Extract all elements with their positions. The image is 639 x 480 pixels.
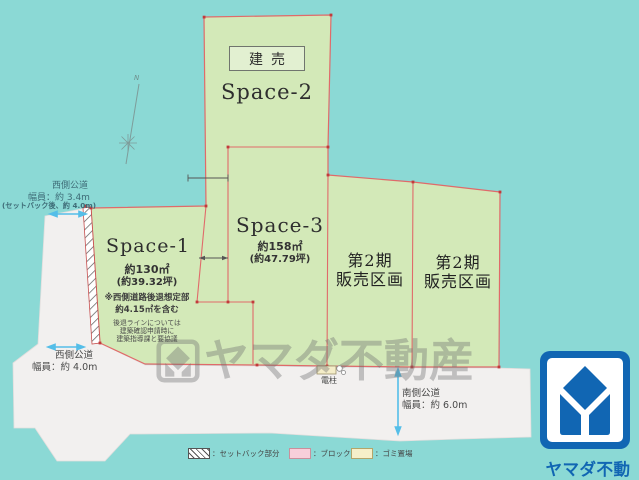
utility-pole-icon: [317, 366, 346, 375]
west-road-upper-setback-note: (セットバック後、約 4.0m): [2, 201, 96, 211]
legend-garbage-swatch: [351, 448, 373, 459]
legend-item-garbage: ：ゴミ置場: [351, 447, 413, 459]
legend-item-setback: ：セットバック部分: [188, 447, 280, 459]
space1-note-2: 約4.15㎡を含む: [115, 303, 178, 315]
company-logo: ヤマダ不動産: [540, 351, 636, 480]
west-road-lower-width: 幅員：約 4.0m: [32, 359, 97, 373]
north-compass-icon: [119, 84, 139, 164]
space3-name: Space-3: [236, 213, 324, 237]
company-logo-icon: [540, 351, 630, 449]
phase2-right-line1: 第2期: [435, 253, 480, 272]
legend-setback-label: ：セットバック部分: [212, 448, 280, 459]
south-road-width: 幅員：約 6.0m: [402, 397, 467, 411]
legend-setback-swatch: [188, 448, 210, 459]
legend-block-swatch: [289, 448, 311, 459]
space2-name: Space-2: [221, 80, 313, 104]
kenbai-tag-box: 建売: [229, 46, 305, 71]
legend-block-label: ：ブロック: [313, 448, 351, 459]
plot-map-canvas: ヤマダ不動産 建売 Space-2 Space-3 約158㎡ (約47.79坪…: [0, 0, 639, 480]
kenbai-tag-label: 建売: [241, 49, 293, 69]
phase2-left-line1: 第2期: [347, 251, 392, 270]
space1-note-1: ※西側道路後退想定部: [105, 291, 190, 303]
company-logo-text: ヤマダ不動産: [540, 456, 636, 480]
north-label: N: [134, 74, 139, 82]
space1-tsubo: (約39.32坪): [117, 273, 178, 288]
phase2-left-line2: 販売区画: [336, 270, 404, 289]
space3-tsubo: (約47.79坪): [250, 250, 311, 265]
legend-item-block: ：ブロック: [289, 447, 351, 459]
space1-sub-3: 建築指導課と要協議: [116, 333, 177, 343]
space1-name: Space-1: [106, 235, 190, 257]
legend-garbage-label: ：ゴミ置場: [375, 448, 413, 459]
utility-pole-label: 電柱: [321, 375, 337, 386]
phase2-right-line2: 販売区画: [424, 272, 492, 291]
